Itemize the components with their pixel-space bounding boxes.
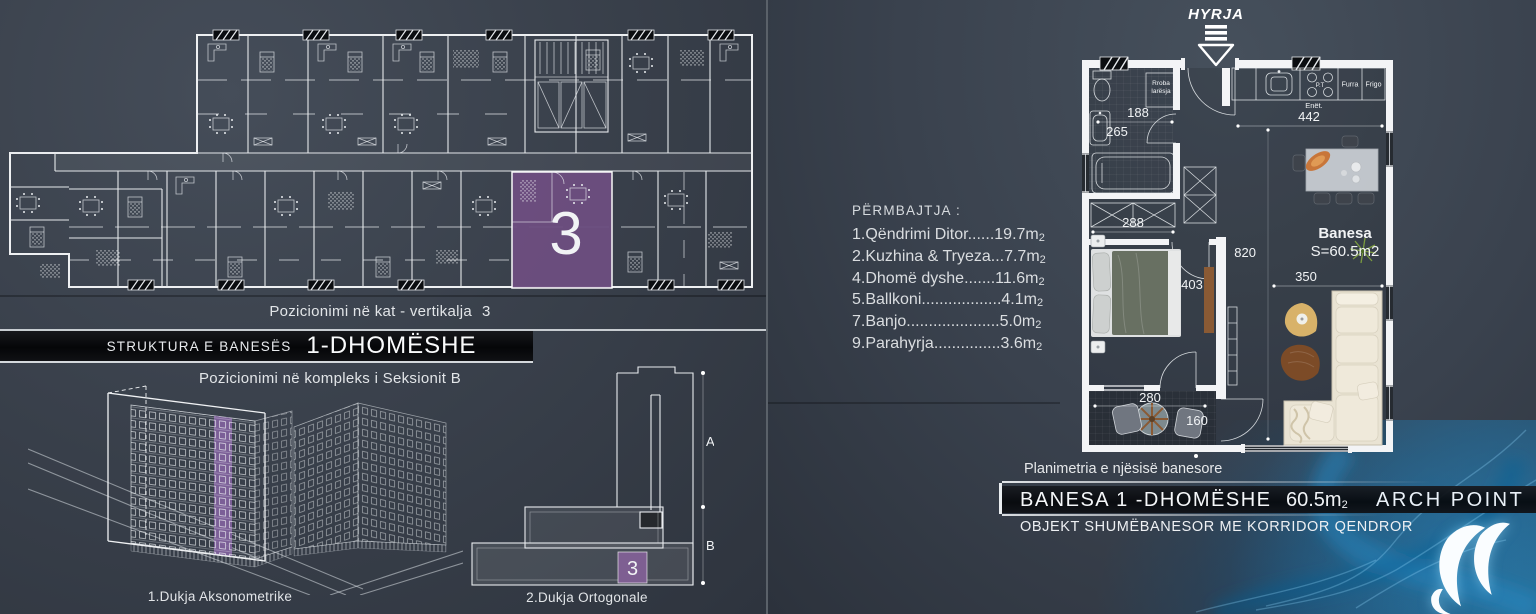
apartment-plan-drawing: Rroba larësja P.T Furra Frigo En [1060, 55, 1410, 460]
orthogonal-unit-3: 3 [618, 552, 647, 583]
bathroom: Rroba larësja [1089, 68, 1176, 193]
presentation-sheet: 3 Pozicionimi në kat - vertikalja3 STRUK… [0, 0, 1536, 614]
building-section-b [131, 405, 292, 567]
banner-top-rule-right [1002, 481, 1432, 483]
title-banner: BANESA 1 -DHOMËSHE 60.5m2 ARCH POINT [1002, 486, 1536, 513]
floor-position-caption: Pozicionimi në kat - vertikalja3 [235, 303, 525, 320]
balcony-chair [1111, 403, 1142, 436]
contents-item: 1.Qëndrimi Ditor......19.7m2 [852, 225, 1042, 247]
svg-text:160: 160 [1186, 413, 1208, 428]
window-right-1 [1386, 131, 1393, 167]
bed [1091, 249, 1181, 337]
svg-text:442: 442 [1298, 109, 1320, 124]
section-b-label: B [706, 538, 714, 553]
structure-banner-title: 1-DHOMËSHE [306, 332, 476, 360]
window-left [1082, 153, 1089, 193]
panel-divider [766, 0, 768, 614]
svg-text:403: 403 [1181, 277, 1203, 292]
banner-title: BANESA 1 -DHOMËSHE [1020, 489, 1272, 512]
svg-text:820: 820 [1234, 245, 1256, 260]
contents-item: 4.Dhomë dyshe.......11.6m2 [852, 269, 1042, 291]
svg-text:265: 265 [1106, 124, 1128, 139]
highlighted-unit-3: 3 [512, 172, 612, 288]
building-adjacent [294, 403, 446, 556]
oven-label: Furra [1342, 82, 1359, 89]
stair-core [535, 40, 608, 132]
central-corridor [55, 154, 752, 171]
contents-list: PËRMBAJTJA : 1.Qëndrimi Ditor......19.7m… [852, 203, 1042, 356]
svg-text:188: 188 [1127, 105, 1149, 120]
svg-text:280: 280 [1139, 390, 1161, 405]
contents-item: 9.Parahyrja...............3.6m2 [852, 334, 1042, 356]
footprint-outline [472, 367, 693, 585]
section-dimension-line: A B [701, 371, 714, 585]
contents-item: 2.Kuzhina & Tryeza...7.7m2 [852, 247, 1042, 269]
structure-banner: STRUKTURA E BANESËS 1-DHOMËSHE [0, 331, 533, 361]
arch-point-logo-icon [1398, 522, 1528, 614]
window-right-3 [1386, 385, 1393, 421]
orthogonal-caption: 2.Dukja Ortogonale [477, 590, 697, 605]
tv-console [1204, 267, 1214, 333]
axonometric-view-drawing [28, 383, 463, 595]
axonometric-caption: 1.Dukja Aksonometrike [110, 589, 330, 604]
entry-label: HYRJA [1186, 6, 1246, 23]
section-a-label: A [706, 434, 714, 449]
banner-bottom-rule [0, 361, 533, 363]
fridge-label: Frigo [1366, 82, 1382, 89]
svg-text:350: 350 [1295, 269, 1317, 284]
contents-item: 5.Ballkoni..................4.1m2 [852, 290, 1042, 312]
unit-area-label: S=60.5m2 [1311, 243, 1380, 260]
right-seam-line [768, 402, 1060, 404]
plan-caption: Planimetria e njësisë banesore [1024, 461, 1222, 477]
object-subtitle: OBJEKT SHUMËBANESOR ME KORRIDOR QENDROR [1020, 519, 1413, 535]
contents-header: PËRMBAJTJA : [852, 203, 1042, 218]
brand-name: ARCH POINT [1376, 489, 1524, 512]
unit-name-label: Banesa [1318, 225, 1372, 242]
floor-plan-overview-drawing: 3 [8, 22, 764, 298]
orthogonal-view-drawing: 3 A B [462, 362, 714, 592]
svg-text:larësja: larësja [1151, 88, 1171, 95]
contents-item: 7.Banjo.....................5.0m2 [852, 312, 1042, 334]
svg-text:Rroba: Rroba [1152, 80, 1170, 87]
unit-number-label: 3 [549, 200, 582, 267]
window-right-2 [1386, 285, 1393, 321]
banner-area: 60.5m2 [1286, 489, 1348, 512]
svg-text:288: 288 [1122, 215, 1144, 230]
throw-pillow [1357, 381, 1379, 400]
structure-banner-prefix: STRUKTURA E BANESËS [107, 339, 292, 354]
svg-text:3: 3 [627, 558, 638, 580]
svg-text:P.T: P.T [1316, 83, 1325, 89]
banner-bottom-rule-right [1002, 514, 1382, 516]
balcony-table [1136, 403, 1168, 435]
building-outline [10, 35, 752, 287]
